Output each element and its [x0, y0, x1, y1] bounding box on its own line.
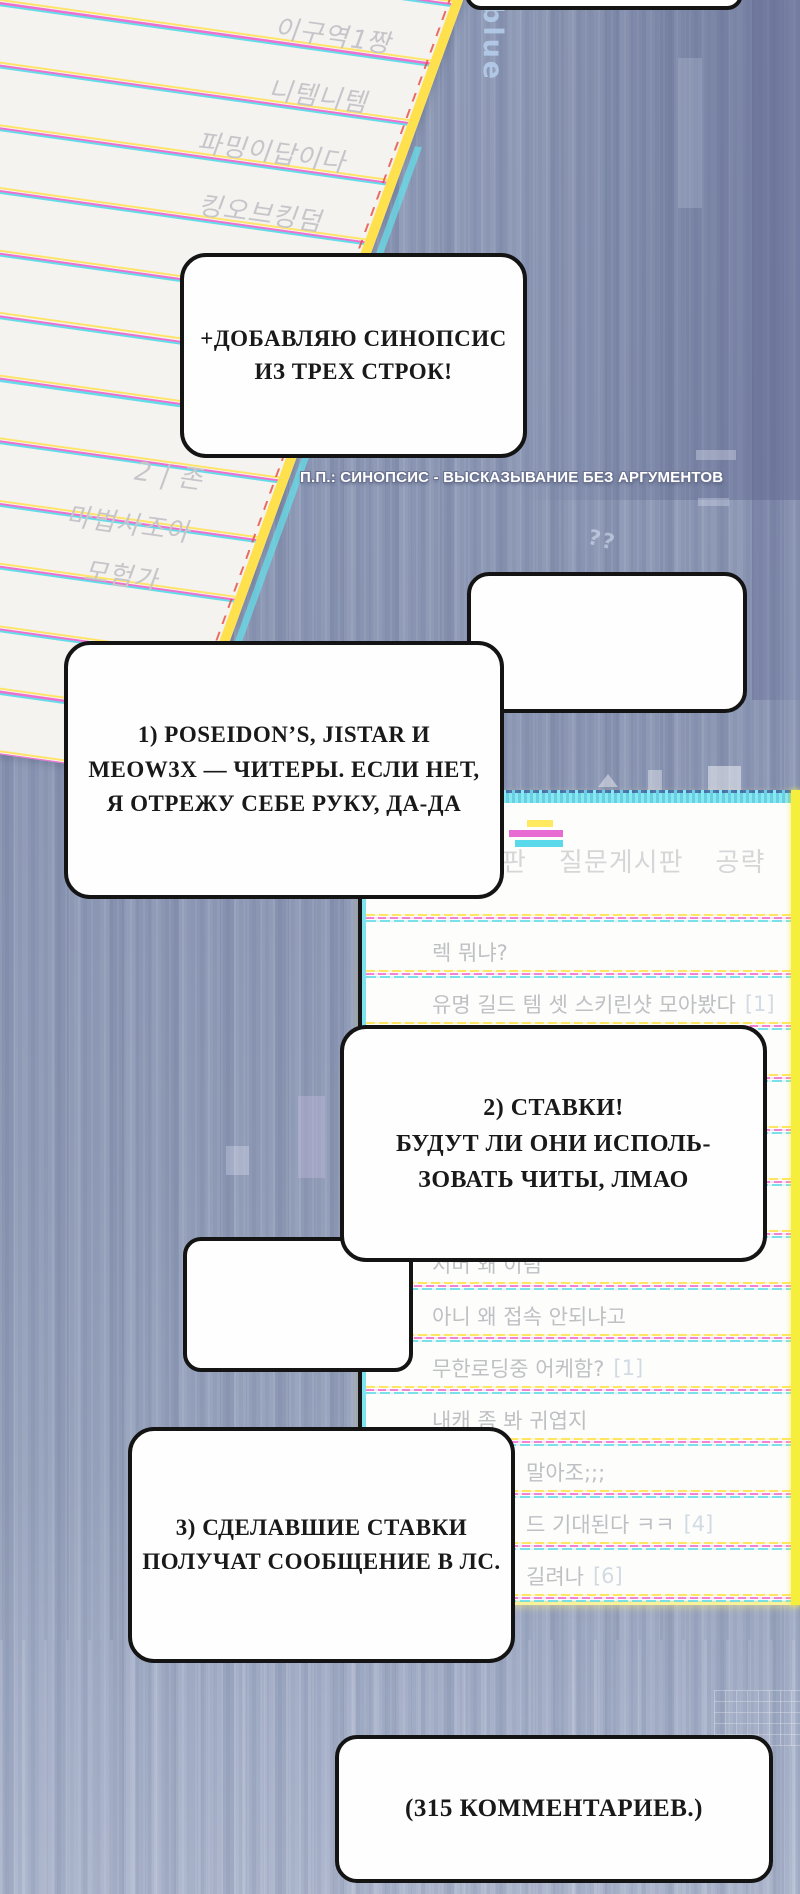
blue-watermark-text: blue: [477, 4, 508, 82]
row-separator: [366, 1282, 791, 1290]
translator-note: П.П.: СИНОПСИС - ВЫСКАЗЫВАНИЕ БЕЗ АРГУМЕ…: [300, 469, 645, 486]
comment-count-badge: [6]: [593, 1564, 623, 1588]
glitch-rect: [648, 770, 662, 791]
row-separator: [366, 970, 791, 978]
row-separator: [366, 1334, 791, 1342]
forum-row-title: 길려나: [526, 1561, 584, 1591]
forum-tab[interactable]: 판: [502, 842, 527, 879]
paper-entry: 이구역1짱: [271, 9, 400, 61]
forum-row-title: 유명 길드 템 셋 스키린샷 모아봤다: [432, 989, 736, 1019]
comment-count-badge: [1]: [745, 992, 775, 1016]
forum-tab[interactable]: 질문게시판: [559, 842, 684, 879]
background-shade-right: [752, 0, 800, 700]
speech-bubble-point-1: 1) POSEIDON’S, JISTAR И MEOW3X — ЧИТЕРЫ.…: [64, 641, 504, 899]
row-separator: [366, 1386, 791, 1394]
glitch-rect: [678, 58, 702, 208]
comment-count-badge: [1]: [613, 1356, 643, 1380]
glitch-question-marks: ??: [586, 525, 619, 555]
glitch-rect: [708, 766, 741, 792]
forum-row-title: 말아조;;;: [526, 1457, 605, 1487]
forum-tabs: 판질문게시판공략: [502, 842, 765, 879]
paper-entry: 2 | 존: [129, 451, 212, 496]
paper-entry: 파밍이답이다: [194, 123, 355, 179]
paper-entry: 킹오브킹덤: [195, 186, 331, 239]
forum-tab[interactable]: 공략: [716, 842, 766, 879]
forum-panel-scroll-strip[interactable]: [791, 790, 800, 1605]
forum-row-title: 무한로딩중 어케함?: [432, 1353, 604, 1383]
forum-row-title: 렉 뭐냐?: [432, 937, 508, 967]
forum-row[interactable]: 무한로딩중 어케함?[1]: [366, 1342, 791, 1394]
glitch-triangle: [598, 774, 618, 787]
speech-bubble-empty: [467, 572, 747, 713]
glitch-rect: [698, 498, 729, 506]
paper-entry: 모험가: [80, 551, 167, 597]
glitch-rect: [226, 1146, 249, 1175]
speech-bubble-synopsis: +ДОБАВЛЯЮ СИНОПСИС ИЗ ТРЕХ СТРОК!: [180, 253, 527, 458]
tab-separator: [366, 914, 791, 922]
glitch-rect: [696, 450, 736, 460]
paper-entry: 니템니템: [265, 70, 377, 119]
forum-row[interactable]: 아니 왜 접속 안되냐고: [366, 1290, 791, 1342]
speech-bubble-point-3: 3) СДЕЛАВШИЕ СТАВКИ ПОЛУЧАТ СООБЩЕНИЕ В …: [128, 1427, 515, 1663]
glitch-rect: [298, 1096, 325, 1178]
forum-row-title: 아니 왜 접속 안되냐고: [432, 1301, 626, 1331]
forum-row[interactable]: 렉 뭐냐?: [366, 926, 791, 978]
speech-bubble-comments-count: (315 КОММЕНТАРИЕВ.): [335, 1735, 773, 1883]
speech-bubble-point-2: 2) СТАВКИ! БУДУТ ЛИ ОНИ ИСПОЛЬ- ЗОВАТЬ Ч…: [340, 1025, 767, 1262]
comment-count-badge: [4]: [684, 1512, 714, 1536]
paper-entry: 마법사조아: [63, 496, 199, 549]
background-shade-top-right: [520, 0, 800, 500]
forum-row-title: 드 기대된다 ㅋㅋ: [526, 1509, 675, 1539]
speech-bubble-top-partial: [465, 0, 743, 10]
forum-row[interactable]: 유명 길드 템 셋 스키린샷 모아봤다[1]: [366, 978, 791, 1030]
